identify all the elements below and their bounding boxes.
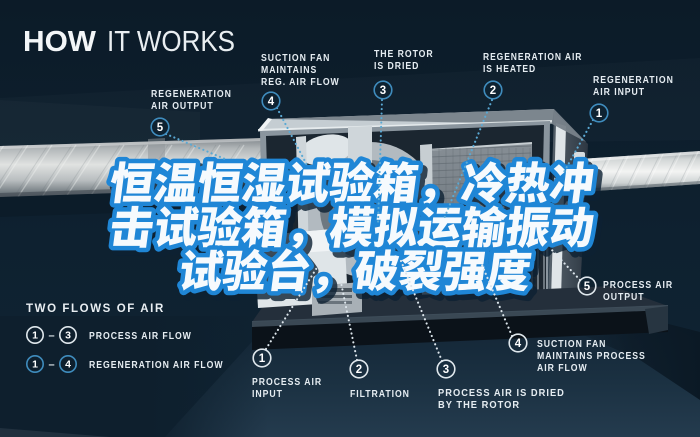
svg-text:PROCESS AIR: PROCESS AIR xyxy=(252,376,322,387)
svg-text:5: 5 xyxy=(157,122,164,134)
svg-text:IS HEATED: IS HEATED xyxy=(483,63,536,74)
svg-text:FILTRATION: FILTRATION xyxy=(350,388,410,399)
svg-text:IT WORKS: IT WORKS xyxy=(107,26,235,58)
svg-text:IS DRIED: IS DRIED xyxy=(374,60,419,71)
svg-text:INPUT: INPUT xyxy=(252,388,283,399)
svg-text:REGENERATION: REGENERATION xyxy=(593,74,674,85)
svg-text:3: 3 xyxy=(65,330,71,342)
svg-text:1: 1 xyxy=(259,353,266,365)
svg-text:AIR FLOW: AIR FLOW xyxy=(537,362,588,373)
svg-text:PROCESS AIR: PROCESS AIR xyxy=(603,279,673,290)
svg-text:SUCTION FAN: SUCTION FAN xyxy=(537,338,606,349)
svg-text:1: 1 xyxy=(32,359,38,371)
svg-text:PROCESS AIR FLOW: PROCESS AIR FLOW xyxy=(89,330,192,341)
svg-text:OUTPUT: OUTPUT xyxy=(603,291,644,302)
svg-text:3: 3 xyxy=(443,364,449,376)
svg-text:MAINTAINS: MAINTAINS xyxy=(261,64,317,75)
svg-text:AIR INPUT: AIR INPUT xyxy=(593,86,645,97)
svg-text:–: – xyxy=(48,330,54,342)
svg-text:REGENERATION: REGENERATION xyxy=(151,88,232,99)
svg-text:2: 2 xyxy=(356,364,362,376)
svg-text:BY THE ROTOR: BY THE ROTOR xyxy=(438,400,520,411)
svg-text:THE ROTOR: THE ROTOR xyxy=(374,48,434,59)
svg-text:REGENERATION AIR FLOW: REGENERATION AIR FLOW xyxy=(89,359,223,370)
svg-text:4: 4 xyxy=(515,338,522,350)
svg-text:HOW: HOW xyxy=(23,26,97,58)
svg-text:REG. AIR FLOW: REG. AIR FLOW xyxy=(261,76,340,87)
svg-text:REGENERATION AIR: REGENERATION AIR xyxy=(483,51,582,62)
svg-text:TWO FLOWS OF AIR: TWO FLOWS OF AIR xyxy=(26,303,165,315)
svg-text:5: 5 xyxy=(584,281,591,293)
svg-text:PROCESS AIR IS DRIED: PROCESS AIR IS DRIED xyxy=(438,388,565,399)
svg-text:1: 1 xyxy=(596,108,603,120)
svg-text:4: 4 xyxy=(268,96,275,108)
svg-text:–: – xyxy=(48,359,54,371)
svg-text:3: 3 xyxy=(380,85,386,97)
svg-text:SUCTION FAN: SUCTION FAN xyxy=(261,52,330,63)
svg-text:AIR OUTPUT: AIR OUTPUT xyxy=(151,100,214,111)
svg-text:4: 4 xyxy=(65,359,71,371)
svg-text:2: 2 xyxy=(490,85,496,97)
svg-text:MAINTAINS PROCESS: MAINTAINS PROCESS xyxy=(537,350,646,361)
svg-text:1: 1 xyxy=(32,330,38,342)
